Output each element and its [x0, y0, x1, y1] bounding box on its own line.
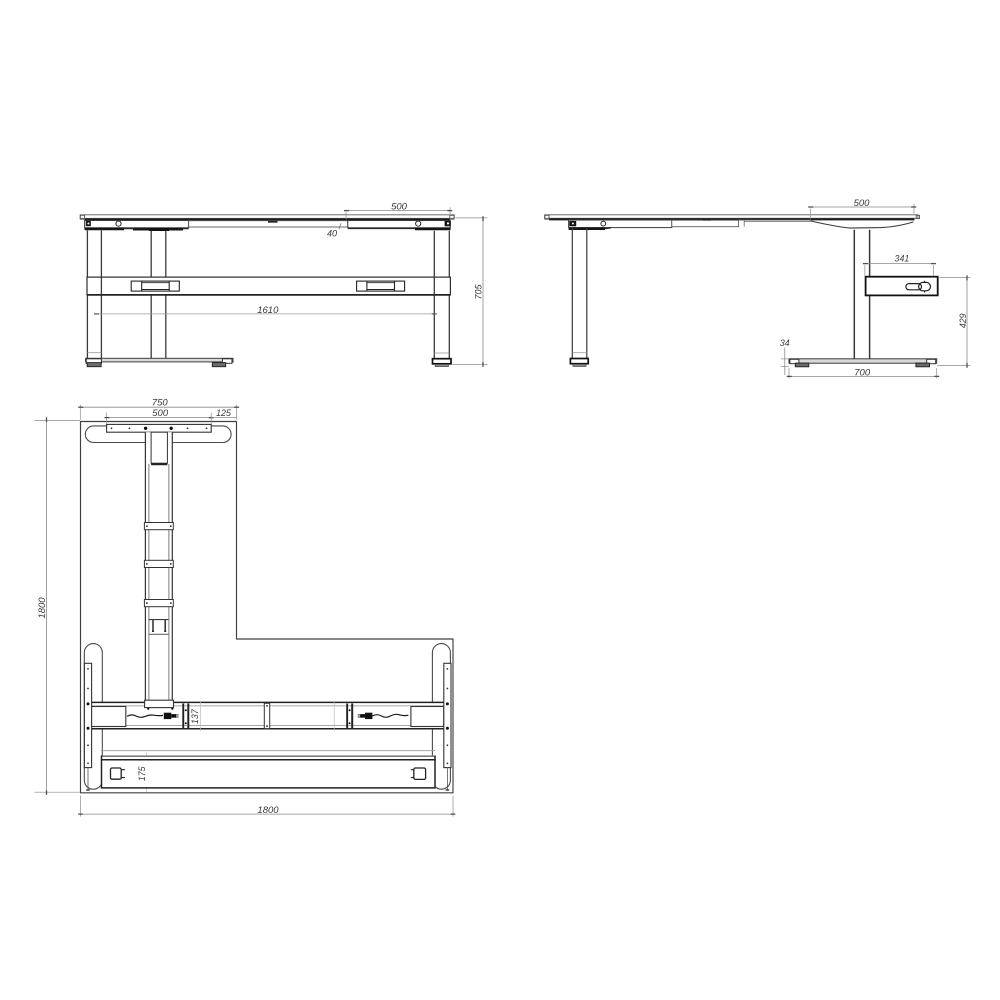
svg-text:500: 500 [854, 198, 871, 209]
svg-text:175: 175 [137, 766, 147, 781]
svg-text:1610: 1610 [257, 305, 279, 316]
svg-text:500: 500 [152, 408, 169, 419]
svg-text:40: 40 [327, 229, 337, 239]
svg-text:500: 500 [391, 201, 408, 212]
svg-text:429: 429 [958, 313, 968, 328]
svg-text:125: 125 [216, 408, 231, 418]
svg-text:34: 34 [780, 338, 790, 348]
svg-text:1800: 1800 [257, 805, 279, 816]
svg-text:1800: 1800 [37, 597, 48, 619]
svg-text:341: 341 [895, 254, 910, 264]
svg-text:137: 137 [190, 708, 200, 724]
svg-text:700: 700 [854, 368, 871, 379]
svg-text:750: 750 [152, 397, 169, 408]
svg-text:705: 705 [474, 284, 484, 300]
